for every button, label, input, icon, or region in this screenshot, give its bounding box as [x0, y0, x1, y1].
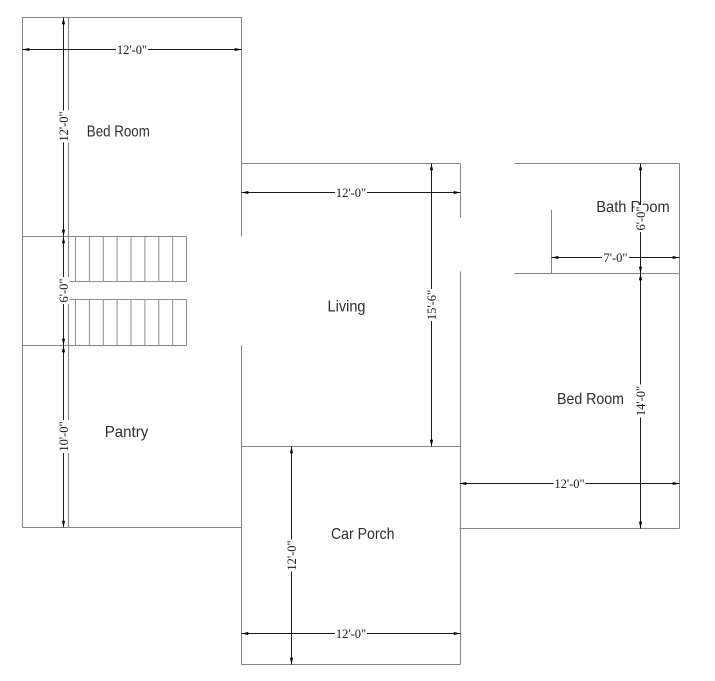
svg-text:12'-0": 12'-0": [57, 111, 71, 141]
svg-text:7'-0": 7'-0": [603, 251, 627, 265]
svg-text:Car Porch: Car Porch: [331, 526, 395, 543]
svg-text:Pantry: Pantry: [105, 424, 149, 441]
svg-text:Living: Living: [328, 299, 366, 316]
svg-text:10'-0": 10'-0": [57, 421, 71, 451]
svg-text:12'-0": 12'-0": [554, 477, 584, 491]
svg-text:14'-0": 14'-0": [634, 386, 648, 416]
svg-text:12'-0": 12'-0": [336, 186, 366, 200]
svg-text:Bed Room: Bed Room: [557, 391, 624, 408]
svg-text:12'-0": 12'-0": [285, 540, 299, 570]
svg-text:12'-0": 12'-0": [336, 627, 366, 641]
svg-text:15'-6": 15'-6": [425, 290, 439, 320]
svg-text:Bed Room: Bed Room: [87, 123, 150, 140]
svg-text:6'-0": 6'-0": [57, 278, 71, 302]
svg-text:6'-0": 6'-0": [634, 206, 648, 230]
svg-text:12'-0": 12'-0": [117, 43, 147, 57]
